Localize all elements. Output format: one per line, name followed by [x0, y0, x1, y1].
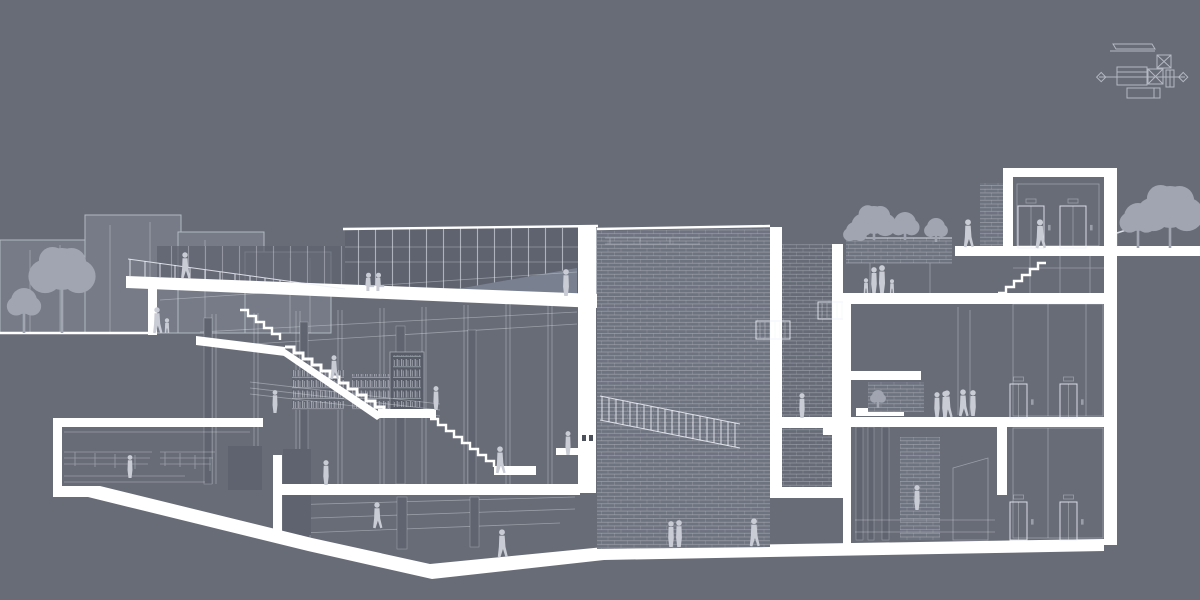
person-silhouette — [668, 521, 674, 547]
person-silhouette — [890, 279, 894, 293]
brick-pier — [980, 183, 1003, 247]
person-silhouette — [128, 455, 133, 478]
mezzanine-slab-cut — [843, 371, 921, 380]
person-silhouette — [323, 460, 328, 485]
person-silhouette — [879, 265, 885, 293]
person-silhouette — [676, 520, 682, 547]
person-silhouette — [871, 267, 877, 293]
elevator-call-button — [1081, 519, 1084, 525]
tree-icon — [852, 205, 897, 240]
cut-wall-right — [1104, 168, 1117, 545]
person-silhouette — [934, 392, 939, 417]
floor-slab-cut — [278, 484, 580, 495]
architectural-section-canvas — [0, 0, 1200, 600]
elevator-call-button — [1048, 225, 1051, 231]
person-silhouette — [565, 431, 570, 455]
louver-vent — [818, 302, 846, 319]
elevator-door — [1010, 495, 1034, 540]
elevator-call-button — [1090, 225, 1093, 231]
cut-wall — [997, 427, 1007, 495]
elevator-door — [1060, 199, 1093, 248]
elevator-door — [1060, 377, 1084, 418]
person-silhouette — [799, 393, 804, 418]
terrace-slab-cut — [843, 293, 1117, 304]
ground-slab-cut — [53, 486, 1104, 579]
mid-level — [823, 304, 1103, 435]
elevator-door — [1060, 495, 1084, 540]
person-silhouette — [563, 269, 569, 296]
top-elevator-lobby — [980, 168, 1115, 256]
elevator-indicator — [1014, 377, 1024, 381]
tree-icon — [1136, 185, 1200, 248]
elevator-call-button — [1031, 519, 1034, 525]
tree-icon — [890, 212, 919, 240]
elevator-call-button — [1031, 399, 1034, 405]
person-silhouette — [433, 386, 438, 410]
elevator-call-button — [1081, 399, 1084, 405]
brick-atrium — [597, 226, 846, 549]
elevator-indicator — [1064, 377, 1074, 381]
cut-wall — [843, 293, 851, 544]
elevator-door — [1010, 377, 1034, 418]
person-silhouette — [942, 391, 948, 417]
column — [468, 330, 476, 484]
left-hall-lower-level — [160, 446, 575, 549]
lower-level — [855, 427, 1103, 540]
elevator-indicator — [1064, 495, 1074, 499]
person-silhouette — [959, 389, 969, 416]
elevator-indicator — [1014, 495, 1024, 499]
roof-slab-cut — [1003, 168, 1115, 177]
person-silhouette — [970, 390, 976, 416]
canopy-cut — [823, 426, 847, 435]
elevator-door — [1018, 199, 1051, 248]
cut-wall — [273, 455, 282, 537]
wall-panel — [228, 446, 262, 490]
brick-pier — [900, 437, 940, 540]
left-hall-cut-wall — [578, 225, 596, 493]
elevator-indicator — [1026, 199, 1036, 203]
person-silhouette — [498, 529, 508, 557]
site-key-plan-icon — [1097, 44, 1188, 98]
person-silhouette — [864, 278, 868, 293]
person-silhouette — [964, 219, 974, 247]
elevator-indicator — [1068, 199, 1078, 203]
person-silhouette — [914, 485, 919, 510]
section-drawing — [0, 0, 1200, 600]
person-silhouette — [273, 390, 278, 413]
